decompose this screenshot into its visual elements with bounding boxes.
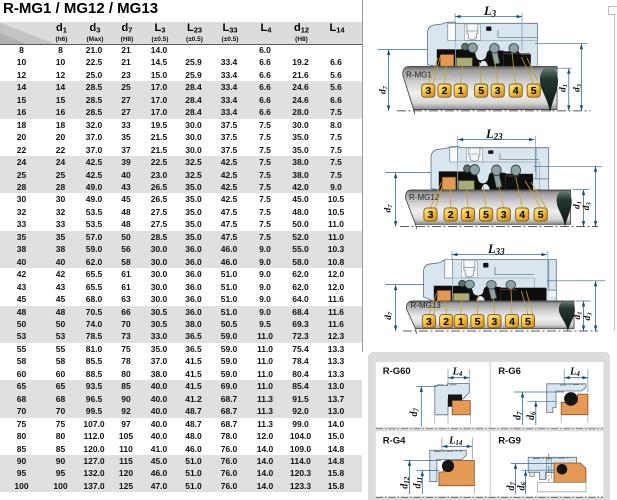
svg-text:5: 5 bbox=[538, 209, 544, 221]
svg-text:L33: L33 bbox=[487, 242, 505, 257]
svg-text:4: 4 bbox=[513, 85, 519, 97]
svg-text:R-MG1: R-MG1 bbox=[406, 71, 432, 80]
svg-text:5: 5 bbox=[525, 316, 531, 328]
svg-text:5: 5 bbox=[531, 85, 537, 97]
svg-text:1: 1 bbox=[465, 209, 471, 221]
svg-text:3: 3 bbox=[491, 316, 497, 328]
svg-text:L23: L23 bbox=[485, 127, 503, 142]
svg-text:4: 4 bbox=[509, 316, 515, 328]
svg-text:2: 2 bbox=[443, 316, 449, 328]
svg-text:L3: L3 bbox=[483, 4, 497, 19]
svg-text:d7: d7 bbox=[384, 311, 394, 320]
svg-text:d3: d3 bbox=[583, 312, 593, 321]
svg-text:3: 3 bbox=[495, 85, 501, 97]
svg-text:R-G6: R-G6 bbox=[498, 366, 521, 377]
svg-text:2: 2 bbox=[442, 85, 448, 97]
svg-text:1: 1 bbox=[458, 316, 464, 328]
svg-text:d7: d7 bbox=[379, 85, 389, 94]
svg-text:3: 3 bbox=[501, 209, 507, 221]
svg-text:5: 5 bbox=[483, 209, 489, 221]
svg-text:3: 3 bbox=[428, 209, 434, 221]
svg-text:1: 1 bbox=[458, 85, 464, 97]
svg-text:5: 5 bbox=[478, 85, 484, 97]
svg-text:d3: d3 bbox=[573, 83, 583, 92]
svg-text:R-G4: R-G4 bbox=[383, 435, 406, 446]
svg-text:3: 3 bbox=[426, 316, 432, 328]
svg-text:R-G9: R-G9 bbox=[498, 435, 521, 446]
svg-text:R-G60: R-G60 bbox=[383, 366, 411, 377]
svg-text:3: 3 bbox=[425, 85, 431, 97]
svg-text:5: 5 bbox=[475, 316, 481, 328]
svg-text:2: 2 bbox=[448, 209, 454, 221]
svg-text:d7: d7 bbox=[384, 204, 394, 213]
svg-text:d1: d1 bbox=[559, 84, 569, 92]
svg-text:4: 4 bbox=[519, 209, 525, 221]
